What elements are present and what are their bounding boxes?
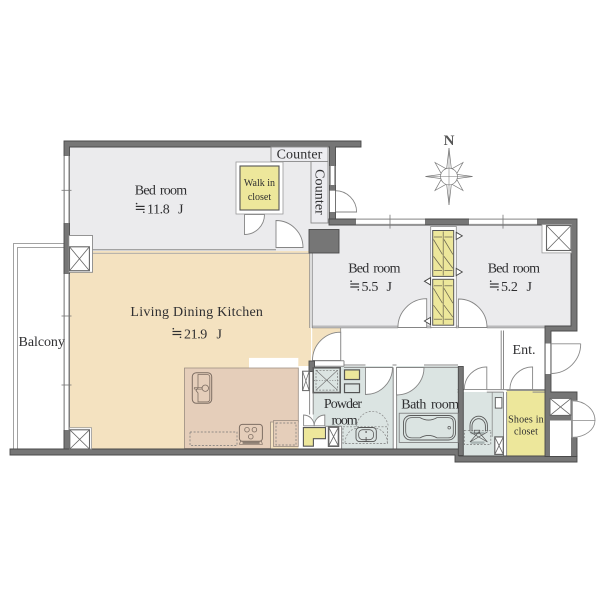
svg-text:closet: closet (248, 192, 272, 203)
svg-text:Bath room: Bath room (401, 397, 459, 412)
svg-text:Shoes in: Shoes in (508, 415, 544, 426)
svg-text:Ent.: Ent. (513, 343, 536, 358)
svg-text:J: J (527, 280, 533, 295)
svg-text:Living Dining Kitchen: Living Dining Kitchen (130, 305, 263, 320)
svg-text:Bed room: Bed room (488, 262, 540, 277)
svg-text:Walk in: Walk in (244, 178, 275, 189)
svg-text:Counter: Counter (277, 148, 323, 163)
svg-text:J: J (217, 328, 223, 343)
svg-text:N: N (444, 133, 455, 149)
svg-text:11.8: 11.8 (147, 202, 170, 217)
svg-text:J: J (387, 280, 393, 295)
svg-text:J: J (178, 202, 184, 217)
svg-text:21.9: 21.9 (184, 328, 207, 343)
svg-text:5.2: 5.2 (501, 280, 518, 295)
svg-text:Bed room: Bed room (348, 262, 400, 277)
svg-text:closet: closet (514, 427, 538, 438)
svg-text:Powder: Powder (324, 397, 363, 412)
svg-text:Counter: Counter (312, 169, 327, 215)
svg-text:room: room (332, 414, 358, 429)
svg-text:5.5: 5.5 (362, 280, 379, 295)
svg-text:Balcony: Balcony (19, 335, 65, 350)
svg-text:Bed room: Bed room (135, 183, 187, 198)
